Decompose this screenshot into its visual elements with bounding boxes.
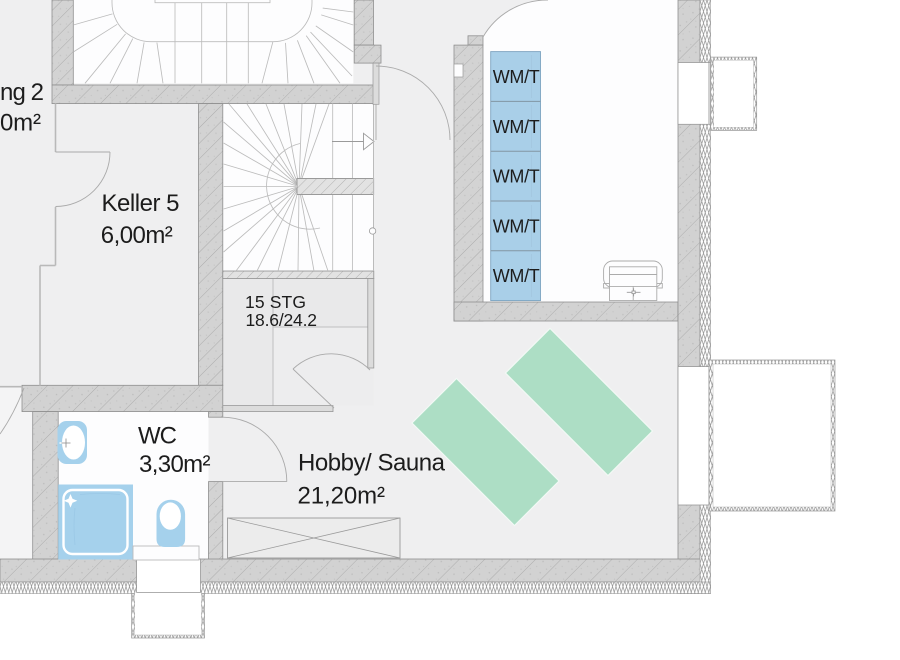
svg-text:18.6/24.2: 18.6/24.2 xyxy=(246,310,318,330)
svg-text:15 STG: 15 STG xyxy=(245,292,306,312)
svg-text:WM/T: WM/T xyxy=(493,67,540,87)
svg-text:WM/T: WM/T xyxy=(493,167,540,187)
svg-text:WM/T: WM/T xyxy=(493,216,540,236)
svg-text:Hobby/ Sauna: Hobby/ Sauna xyxy=(298,450,446,477)
svg-text:21,20m²: 21,20m² xyxy=(298,483,386,510)
svg-text:WC: WC xyxy=(138,423,177,450)
svg-text:WM/T: WM/T xyxy=(493,117,540,137)
svg-text:3,30m²: 3,30m² xyxy=(139,451,211,478)
svg-text:0m²: 0m² xyxy=(0,110,41,137)
svg-text:WM/T: WM/T xyxy=(493,266,540,286)
svg-text:6,00m²: 6,00m² xyxy=(101,222,173,249)
svg-text:Keller 5: Keller 5 xyxy=(102,190,180,217)
svg-text:ng 2: ng 2 xyxy=(0,79,44,106)
